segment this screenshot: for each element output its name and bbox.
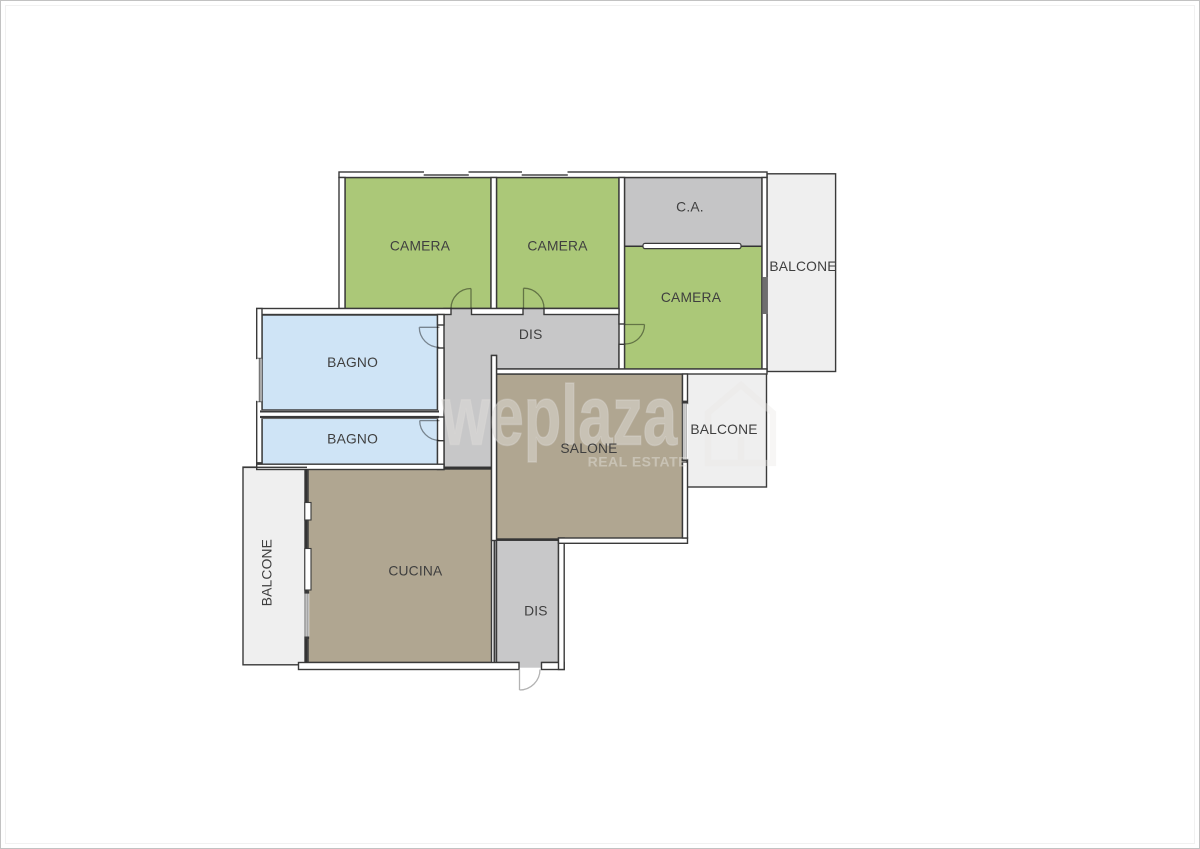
svg-text:REAL ESTATE: REAL ESTATE — [588, 454, 688, 470]
svg-text:DIS: DIS — [519, 327, 543, 342]
svg-text:CAMERA: CAMERA — [661, 290, 722, 305]
svg-text:BALCONE: BALCONE — [769, 259, 836, 274]
svg-text:BAGNO: BAGNO — [327, 431, 378, 446]
svg-text:SALONE: SALONE — [560, 441, 617, 456]
svg-text:BALCONE: BALCONE — [260, 539, 275, 606]
svg-text:CAMERA: CAMERA — [527, 238, 588, 253]
svg-text:C.A.: C.A. — [676, 199, 704, 214]
svg-text:BAGNO: BAGNO — [327, 355, 378, 370]
svg-text:DIS: DIS — [524, 603, 548, 618]
svg-text:CUCINA: CUCINA — [388, 564, 443, 579]
svg-text:BALCONE: BALCONE — [690, 422, 757, 437]
svg-text:CAMERA: CAMERA — [390, 238, 451, 253]
